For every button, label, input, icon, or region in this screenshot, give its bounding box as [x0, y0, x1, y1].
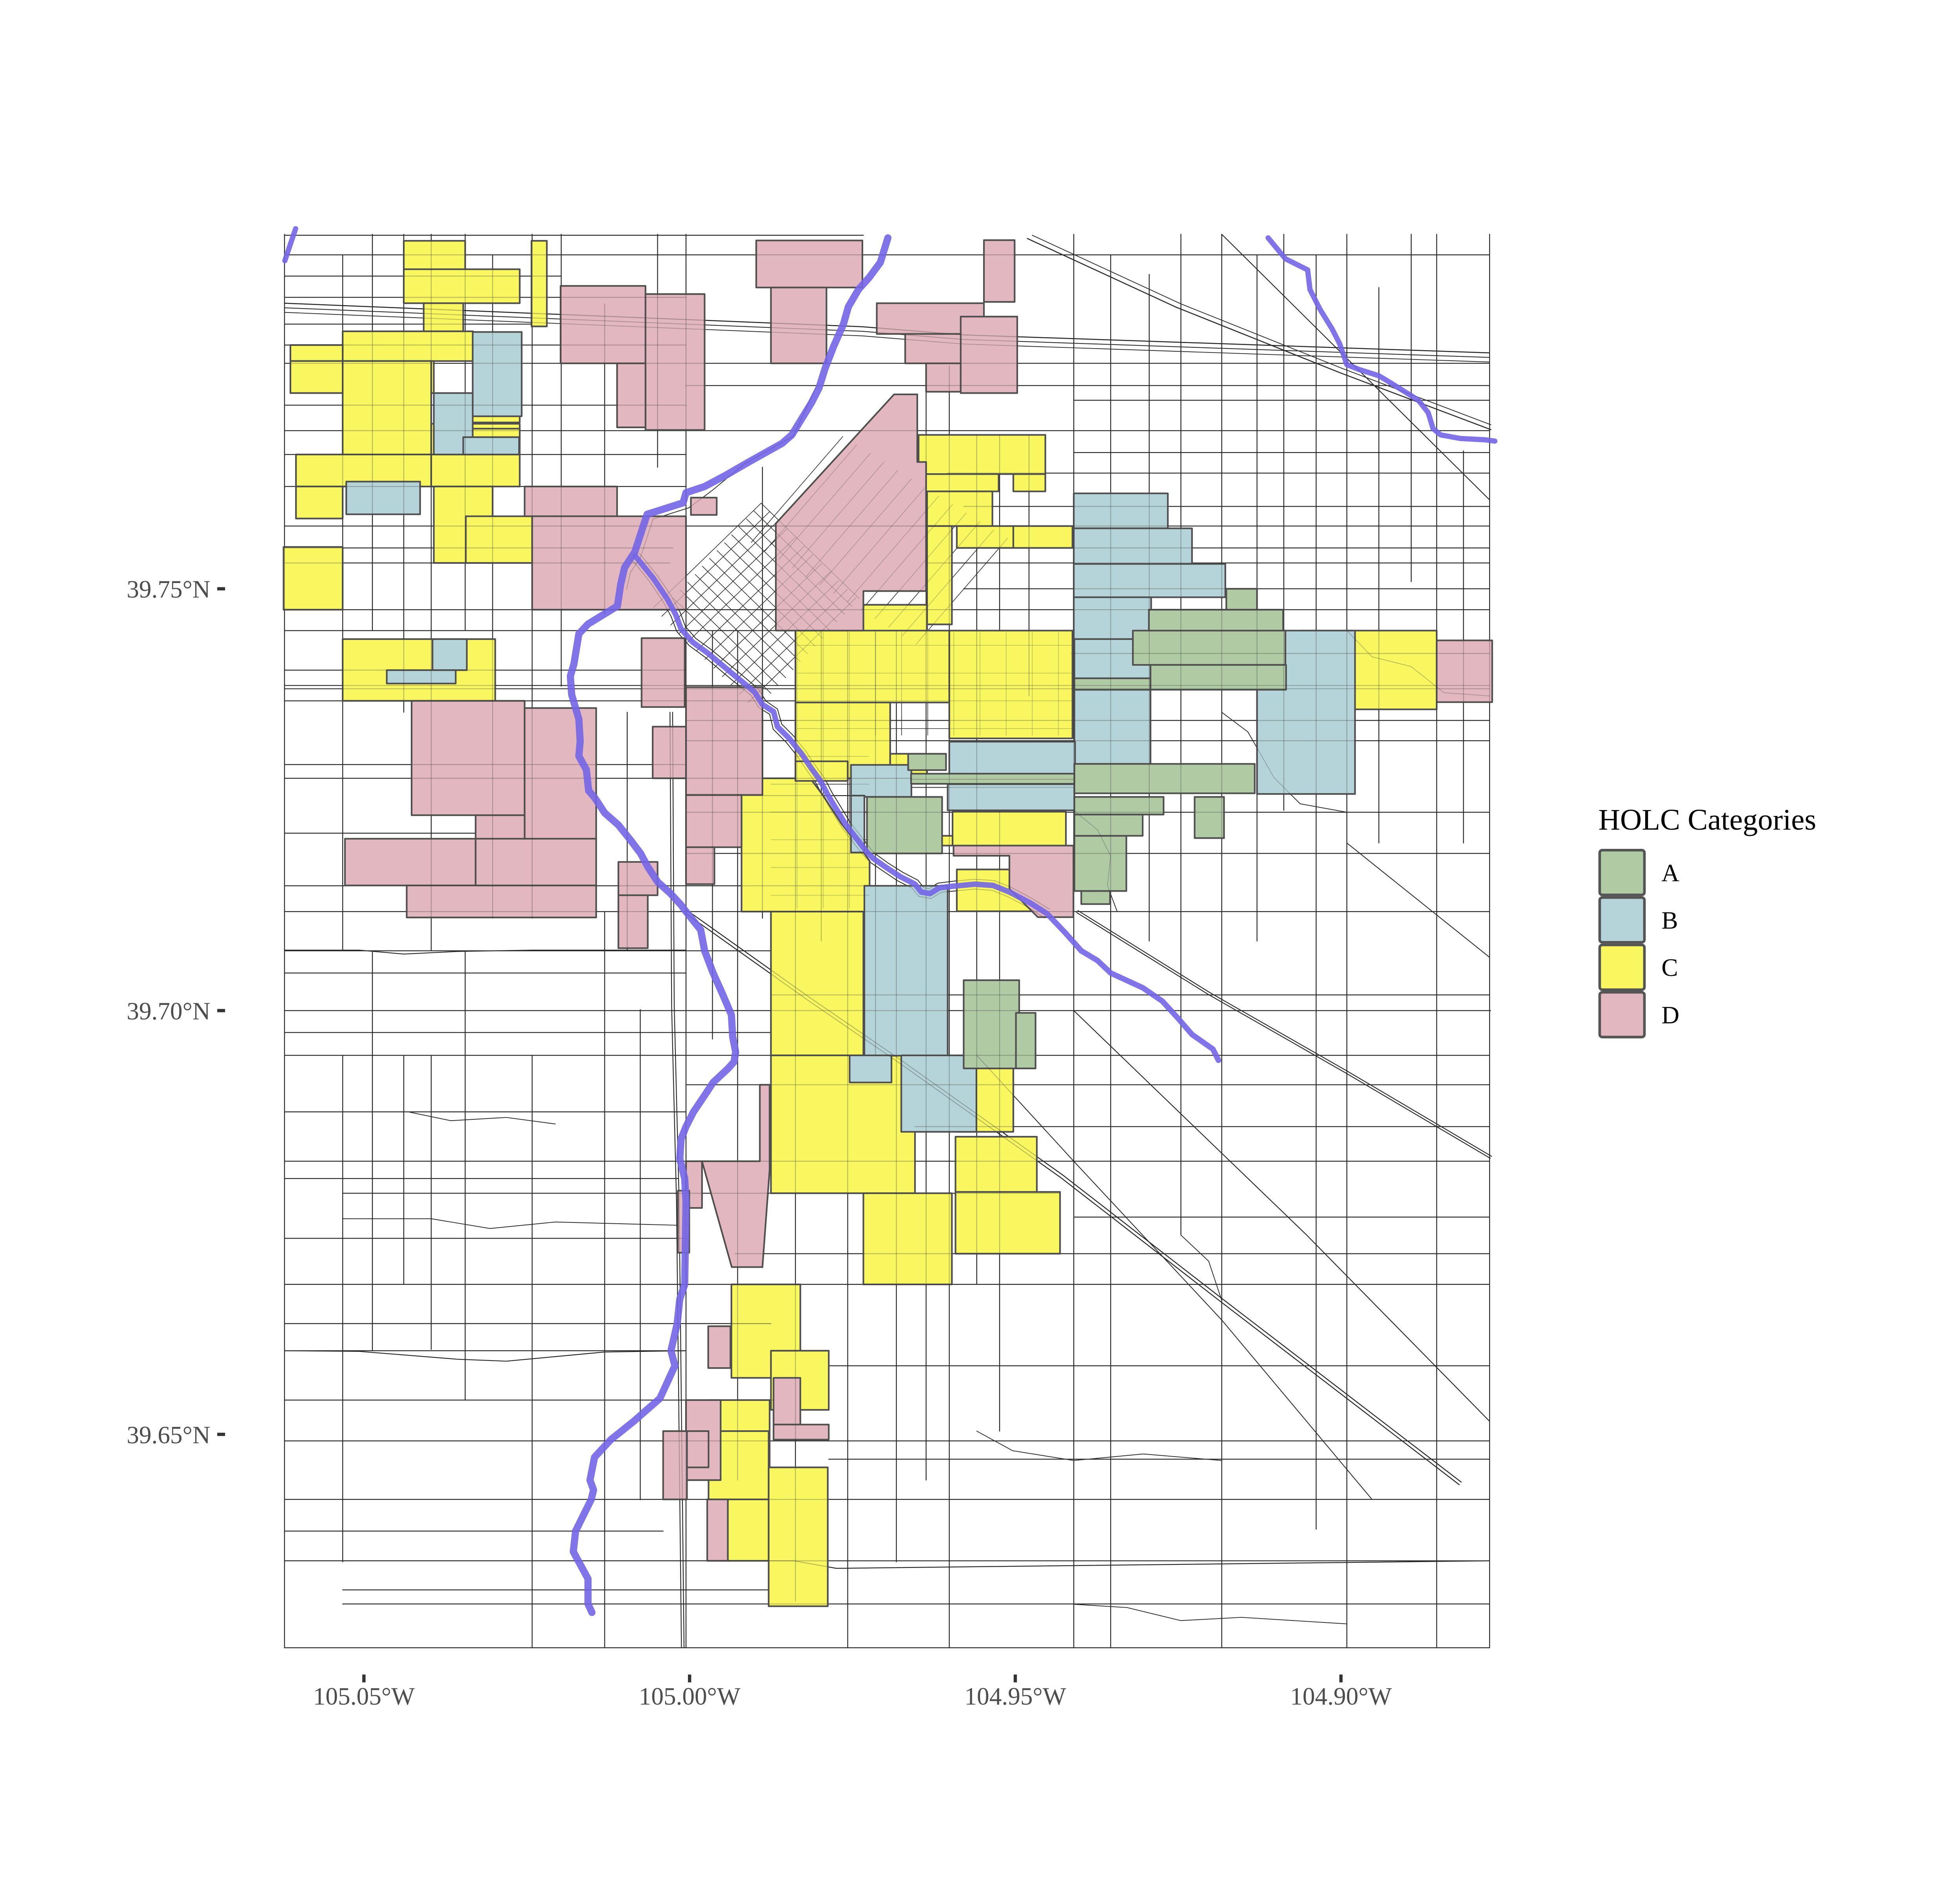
svg-text:104.95°W: 104.95°W: [964, 1683, 1066, 1710]
svg-text:HOLC Categories: HOLC Categories: [1599, 803, 1817, 836]
svg-text:C: C: [1661, 954, 1678, 981]
svg-text:104.90°W: 104.90°W: [1290, 1683, 1392, 1710]
svg-text:39.65°N: 39.65°N: [127, 1421, 211, 1449]
svg-text:D: D: [1661, 1001, 1679, 1029]
svg-text:39.75°N: 39.75°N: [127, 576, 211, 603]
svg-text:B: B: [1661, 906, 1678, 934]
svg-text:39.70°N: 39.70°N: [127, 997, 211, 1025]
svg-text:A: A: [1661, 859, 1679, 887]
svg-text:105.00°W: 105.00°W: [639, 1683, 740, 1710]
svg-text:105.05°W: 105.05°W: [313, 1683, 415, 1710]
